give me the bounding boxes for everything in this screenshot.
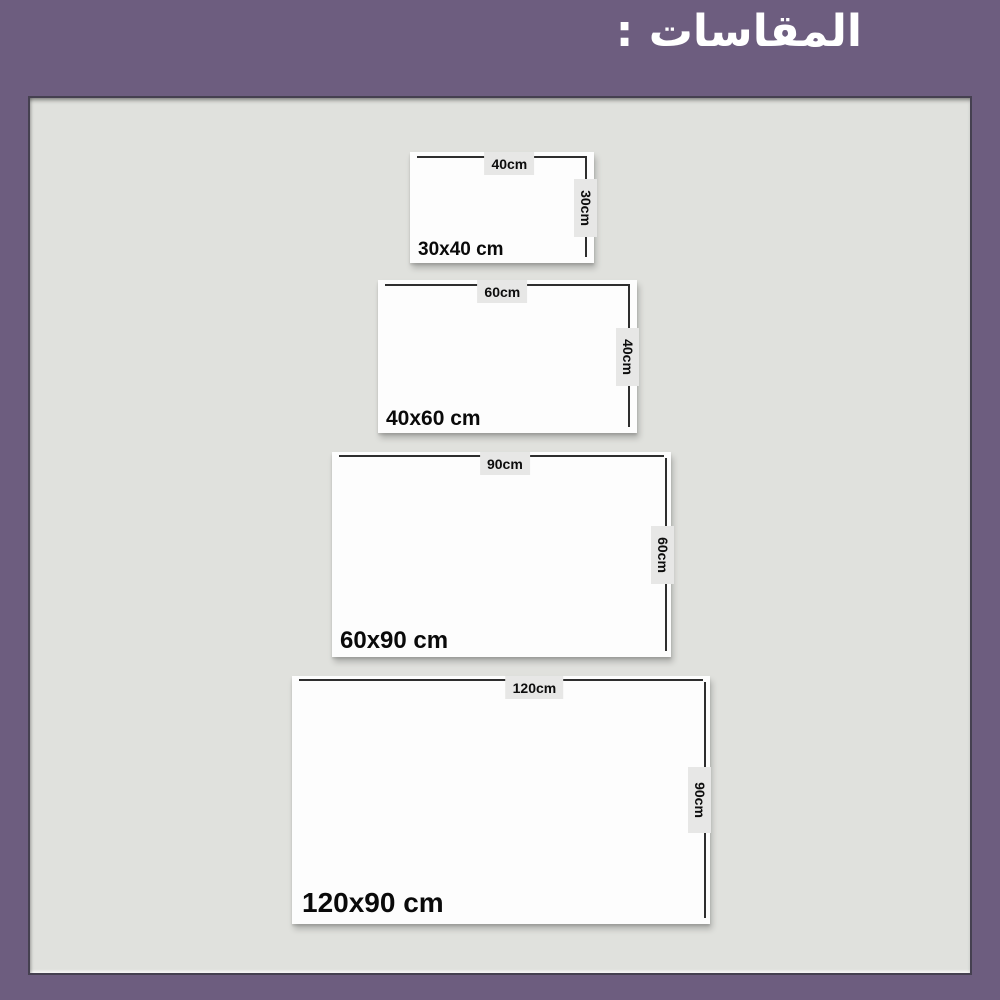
height-label: 30cm xyxy=(574,179,597,237)
size-name: 120x90 cm xyxy=(302,887,444,919)
page-title: المقاسات : xyxy=(616,6,862,57)
size-card-30x40: 40cm 30cm 30x40 cm xyxy=(410,152,594,263)
width-dimension-line xyxy=(299,679,703,681)
height-label: 90cm xyxy=(688,767,711,833)
height-label-text: 90cm xyxy=(692,782,708,818)
width-label: 120cm xyxy=(506,676,564,699)
size-card-40x60: 60cm 40cm 40x60 cm xyxy=(378,280,637,433)
width-label: 60cm xyxy=(477,280,527,303)
height-label-text: 60cm xyxy=(655,537,671,573)
size-name: 30x40 cm xyxy=(418,239,504,261)
size-card-60x90: 90cm 60cm 60x90 cm xyxy=(332,452,671,657)
sizes-panel: 40cm 30cm 30x40 cm 60cm 40cm 40x60 cm 90… xyxy=(28,96,972,975)
height-label-text: 30cm xyxy=(578,190,594,226)
width-label: 90cm xyxy=(480,452,530,475)
width-label: 40cm xyxy=(484,152,534,175)
height-label: 40cm xyxy=(616,328,639,386)
size-name: 60x90 cm xyxy=(340,627,448,655)
size-name: 40x60 cm xyxy=(386,407,481,431)
height-label: 60cm xyxy=(651,526,674,584)
height-label-text: 40cm xyxy=(620,339,636,375)
size-card-120x90: 120cm 90cm 120x90 cm xyxy=(292,676,710,924)
